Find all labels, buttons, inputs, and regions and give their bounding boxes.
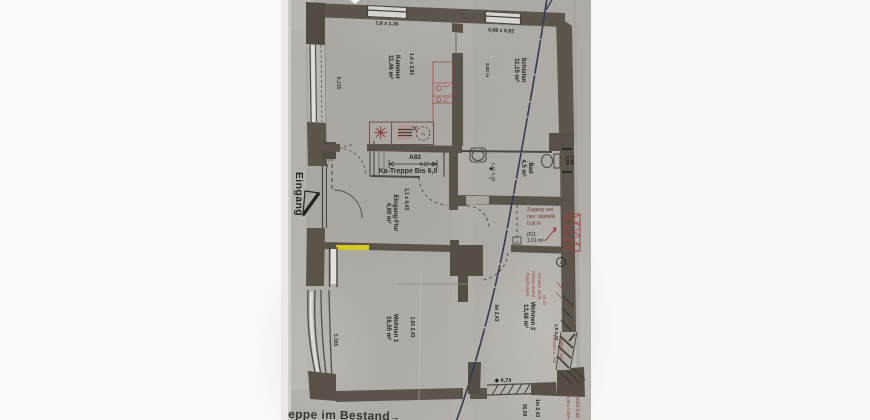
svg-text:Fenster u. Tür: Fenster u. Tür xyxy=(552,335,557,364)
svg-text:1,4 x 3,81: 1,4 x 3,81 xyxy=(408,53,414,75)
svg-text:Decke 2,43: Decke 2,43 xyxy=(575,394,580,418)
svg-text:16,55 m²: 16,55 m² xyxy=(385,316,392,340)
svg-text:11,15 m²: 11,15 m² xyxy=(513,58,520,82)
svg-text:Bad: Bad xyxy=(527,162,533,174)
svg-text:36,08: 36,08 xyxy=(521,404,527,417)
svg-text:1,01 m²: 1,01 m² xyxy=(527,238,544,244)
svg-text:5,385: 5,385 xyxy=(332,334,338,347)
svg-text:45: 45 xyxy=(421,132,426,137)
svg-text:Ka-Treppe Bis 6,0: Ka-Treppe Bis 6,0 xyxy=(379,168,438,175)
svg-text:Fenster dicht: Fenster dicht xyxy=(537,273,542,300)
svg-text:0,dr kl: 0,dr kl xyxy=(527,221,541,227)
svg-text:4,5 m²: 4,5 m² xyxy=(520,159,527,176)
svg-text:lm 2,43: lm 2,43 xyxy=(493,305,499,322)
svg-text:Wohnen 1: Wohnen 1 xyxy=(392,314,398,343)
svg-text:2,52 m: 2,52 m xyxy=(485,63,490,77)
svg-text:1,8 x 1,36: 1,8 x 1,36 xyxy=(375,20,398,27)
svg-text:Zuluft elektr.: Zuluft elektr. xyxy=(525,272,530,297)
svg-text:11,46 m²: 11,46 m² xyxy=(387,55,394,79)
svg-text:Kammer: Kammer xyxy=(394,55,400,80)
svg-text:Eingang-Flur: Eingang-Flur xyxy=(392,195,398,233)
svg-text:eppe im Bestand→: eppe im Bestand→ xyxy=(288,407,401,420)
svg-text:13,68 m²: 13,68 m² xyxy=(522,304,529,328)
svg-text:Schlafen: Schlafen xyxy=(520,57,526,82)
svg-text:Anbau Wand: Anbau Wand xyxy=(531,271,536,298)
svg-text:A82: A82 xyxy=(409,154,421,161)
svg-text:Balkon neu: Balkon neu xyxy=(559,338,564,361)
svg-text:Zugang verl.: Zugang verl. xyxy=(527,207,555,213)
svg-text:8,135: 8,135 xyxy=(335,77,341,90)
svg-text:4,90 m²: 4,90 m² xyxy=(385,203,392,224)
svg-text:Eingang: Eingang xyxy=(293,172,305,216)
svg-text:1,1 x 4,43: 1,1 x 4,43 xyxy=(403,188,409,210)
svg-text:Wohnen 2: Wohnen 2 xyxy=(529,302,535,331)
svg-text:1m 2,43: 1m 2,43 xyxy=(534,399,540,418)
svg-text:1,62 2,43: 1,62 2,43 xyxy=(491,163,496,182)
svg-text:ok dr: ok dr xyxy=(542,295,547,306)
svg-text:1,52: 1,52 xyxy=(569,155,575,165)
svg-text:neu: abstellk: neu: abstellk xyxy=(527,214,556,220)
svg-text:Podest holen: Podest holen xyxy=(566,393,571,420)
svg-text:◆ 4,74: ◆ 4,74 xyxy=(494,377,512,384)
svg-text:1,81 2,43: 1,81 2,43 xyxy=(409,317,415,338)
